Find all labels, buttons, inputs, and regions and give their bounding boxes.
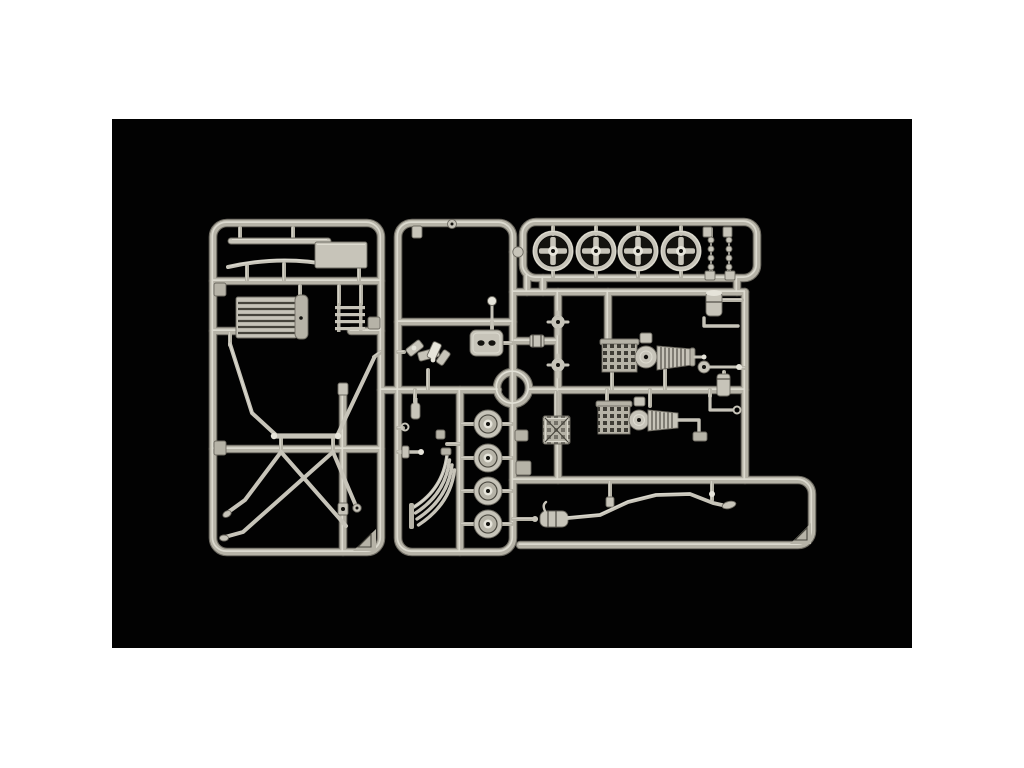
brake-drum	[474, 477, 502, 505]
spool	[530, 335, 544, 347]
chain-clip	[723, 227, 732, 237]
chain-clip	[703, 227, 712, 237]
sprue-photo	[0, 0, 1024, 768]
oil-cylinder	[706, 290, 722, 316]
chain-clip	[705, 271, 715, 280]
wire-wheel	[577, 232, 616, 271]
runner-pad	[436, 430, 445, 439]
chain-clip	[725, 271, 735, 280]
wire-wheel	[662, 232, 701, 271]
radiator	[236, 295, 308, 339]
photo-page	[0, 0, 1024, 768]
top-clip	[412, 226, 422, 238]
runner-pad	[516, 461, 531, 475]
runner-pad	[515, 430, 528, 441]
grid-plate	[543, 416, 570, 444]
runner-pad	[214, 283, 226, 296]
knob-connector	[513, 247, 523, 257]
brake-drum	[474, 410, 502, 438]
brake-drum	[474, 510, 502, 538]
wire-wheel	[619, 232, 658, 271]
round-clip	[448, 220, 457, 229]
canister	[717, 374, 730, 396]
valve-cover	[470, 330, 503, 356]
wire-wheel	[534, 232, 573, 271]
brake-drum	[474, 444, 502, 472]
flat-plate	[315, 242, 367, 268]
runner-pad	[214, 441, 226, 455]
runner-pad	[368, 317, 380, 329]
